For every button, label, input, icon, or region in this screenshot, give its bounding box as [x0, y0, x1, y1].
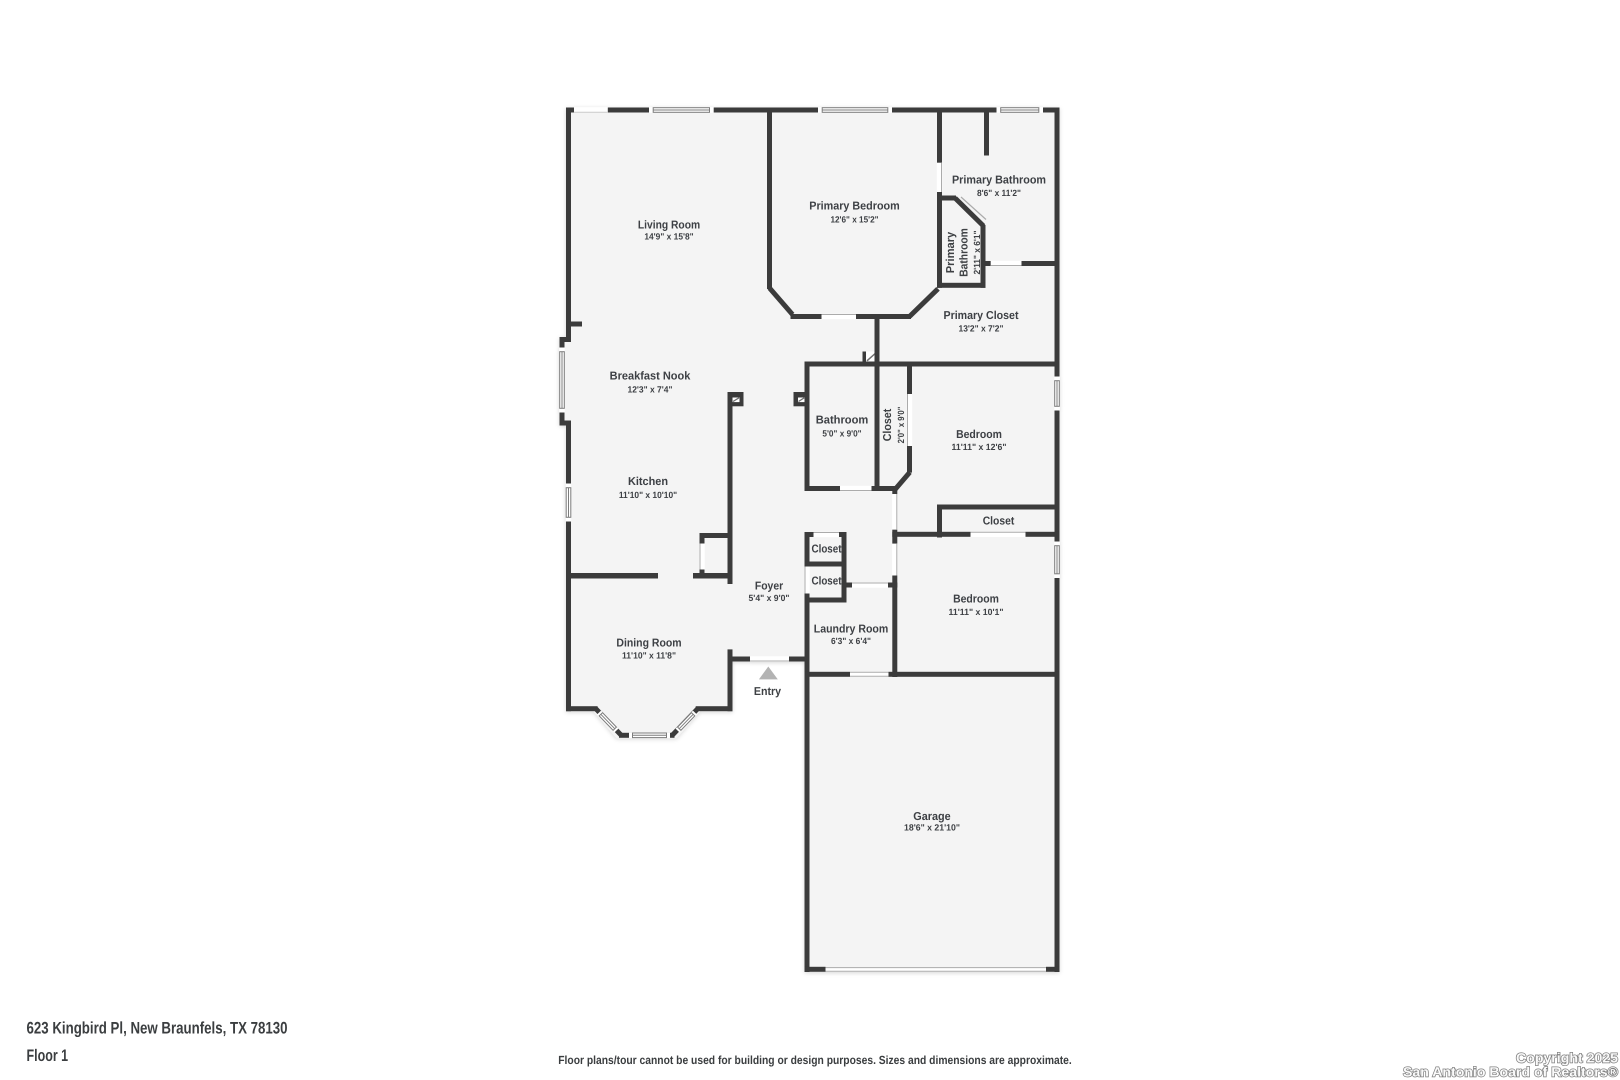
svg-text:Dining Room: Dining Room — [616, 638, 681, 650]
svg-text:5'4" x 9'0": 5'4" x 9'0" — [749, 593, 790, 603]
svg-text:11'10" x 10'10": 11'10" x 10'10" — [619, 490, 677, 500]
svg-text:11'10" x 11'8": 11'10" x 11'8" — [622, 650, 676, 660]
svg-text:623 Kingbird Pl, New Braunfels: 623 Kingbird Pl, New Braunfels, TX 78130 — [27, 1018, 288, 1037]
svg-text:Bedroom: Bedroom — [953, 594, 999, 606]
svg-text:Bedroom: Bedroom — [956, 429, 1002, 441]
svg-text:6'3" x 6'4": 6'3" x 6'4" — [831, 636, 871, 646]
svg-text:Floor plans/tour cannot be use: Floor plans/tour cannot be used for buil… — [558, 1053, 1072, 1067]
svg-text:Closet: Closet — [812, 575, 842, 587]
svg-text:Primary Bathroom: Primary Bathroom — [952, 174, 1046, 186]
svg-text:Entry: Entry — [754, 686, 782, 698]
svg-text:Living Room: Living Room — [638, 220, 700, 232]
svg-text:11'11" x 12'6": 11'11" x 12'6" — [952, 442, 1007, 452]
svg-text:Floor 1: Floor 1 — [27, 1046, 69, 1065]
svg-text:Kitchen: Kitchen — [628, 476, 668, 488]
svg-text:8'6" x 11'2": 8'6" x 11'2" — [977, 188, 1021, 198]
svg-text:Copyright 2025: Copyright 2025 — [1516, 1050, 1619, 1065]
svg-text:Closet: Closet — [983, 515, 1015, 527]
svg-text:Bathroom: Bathroom — [816, 415, 869, 427]
svg-text:Primary Bedroom: Primary Bedroom — [809, 201, 899, 213]
svg-text:14'9" x 15'8": 14'9" x 15'8" — [644, 232, 693, 242]
svg-text:PrimaryBathroom2'11" x 6'1": PrimaryBathroom2'11" x 6'1" — [945, 228, 982, 277]
svg-text:Primary Closet: Primary Closet — [944, 310, 1019, 322]
svg-text:Foyer: Foyer — [755, 581, 784, 593]
svg-text:Garage: Garage — [913, 811, 950, 823]
svg-text:13'2" x 7'2": 13'2" x 7'2" — [959, 324, 1004, 334]
svg-text:12'6" x 15'2": 12'6" x 15'2" — [830, 215, 878, 225]
svg-text:Laundry Room: Laundry Room — [814, 623, 889, 635]
svg-text:5'0" x 9'0": 5'0" x 9'0" — [822, 429, 861, 439]
svg-text:Breakfast Nook: Breakfast Nook — [610, 370, 691, 382]
svg-text:San Antonio Board of Realtors®: San Antonio Board of Realtors® — [1403, 1065, 1618, 1080]
svg-text:11'11" x 10'1": 11'11" x 10'1" — [949, 607, 1004, 617]
svg-text:18'6" x 21'10": 18'6" x 21'10" — [904, 823, 960, 833]
svg-text:Closet: Closet — [812, 543, 842, 555]
svg-text:12'3" x 7'4": 12'3" x 7'4" — [628, 384, 673, 394]
